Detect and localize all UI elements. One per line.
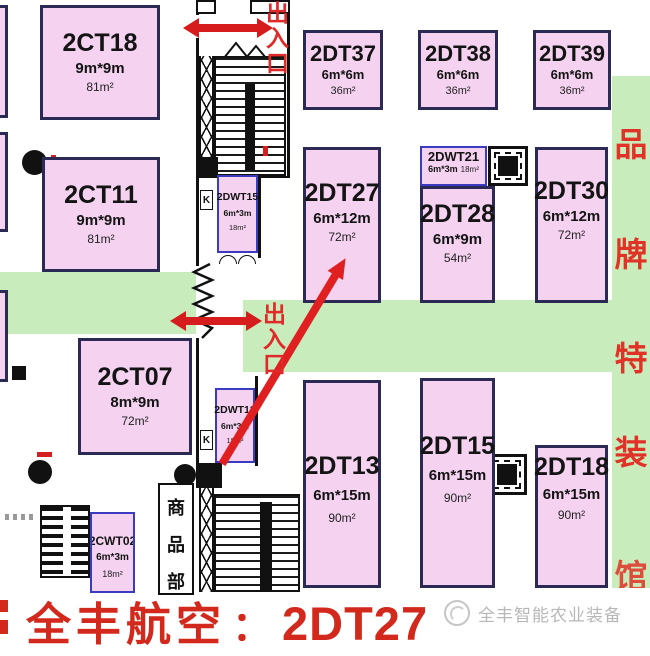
- booth-name: 2CT18: [62, 30, 137, 57]
- booth-dims: 8m*9m: [110, 393, 159, 412]
- shop-char: 品: [167, 531, 185, 557]
- door-stub: [196, 0, 216, 14]
- booth-2cwt02: 2CWT02 6m*3m 18m²: [90, 512, 135, 593]
- booth-2dt28: 2DT28 6m*9m 54m²: [420, 186, 495, 303]
- booth-dims: 6m*3m: [428, 164, 458, 174]
- booth-name: 2DT18: [534, 454, 609, 481]
- entrance-char: 口: [263, 352, 286, 377]
- booth-area: 81m²: [87, 232, 114, 247]
- booth-name: 2DWT21: [428, 150, 479, 164]
- booth-area: 72m²: [558, 228, 585, 243]
- booth-2dt15: 2DT15 6m*15m 90m²: [420, 378, 495, 588]
- booth-name: 2DT13: [304, 453, 379, 480]
- elevator-shaft-lower: [199, 488, 214, 592]
- entrance-char: 口: [266, 51, 289, 76]
- red-tick: [263, 146, 268, 156]
- booth-2ct18: 2CT18 9m*9m 81m²: [40, 5, 160, 120]
- booth-area: 36m²: [559, 84, 584, 98]
- booth-dims: 6m*15m: [313, 486, 371, 505]
- watermark-text: 全丰智能农业装备: [478, 601, 622, 626]
- booth-name: 2CWT02: [90, 534, 135, 548]
- booth-dims: 6m*3m: [96, 551, 129, 565]
- highlight-title: 全丰航空 ： 2DT27: [26, 588, 428, 653]
- hatched-structure: [40, 505, 90, 578]
- booth-area: 36m²: [445, 84, 470, 98]
- booth-dims: 6m*6m: [437, 67, 480, 83]
- booth-dims: 6m*12m: [543, 207, 601, 226]
- booth-2dwt21: 2DWT21 6m*3m 18m²: [420, 146, 487, 186]
- booth-name: 2DT28: [420, 201, 495, 228]
- booth-2ct07: 2CT07 8m*9m 72m²: [78, 338, 192, 455]
- booth-dims: 6m*15m: [429, 466, 487, 485]
- corridor-wall: [196, 338, 199, 466]
- door-swing-mark: [219, 255, 237, 264]
- booth-2dt18: 2DT18 6m*15m 90m²: [535, 445, 608, 588]
- booth-dims: 6m*12m: [313, 209, 371, 228]
- corridor-wall: [258, 178, 261, 258]
- booth-dims: 6m*3m: [224, 207, 252, 219]
- banner-char: 品: [614, 128, 648, 162]
- booth-name: 2DT38: [425, 42, 491, 66]
- entrance-char: 出: [263, 302, 286, 327]
- booth-dims: 6m*9m: [433, 230, 482, 249]
- exhibition-floor-plan: 品 牌 特 装 馆 K K 商 品 部: [0, 0, 650, 656]
- clipped-character-fragment: [0, 600, 8, 612]
- booth-2dwt15: 2DWT15 6m*3m 18m²: [217, 175, 258, 253]
- entrance-char: 入: [266, 26, 289, 51]
- column-framed: [488, 146, 528, 186]
- shop-department-box: 商 品 部: [158, 483, 194, 595]
- entrance-char: 出: [266, 1, 289, 26]
- booth-area: 18m²: [102, 568, 123, 580]
- booth-name: 2DT30: [534, 178, 609, 205]
- banner-char-clipped: 馆: [614, 560, 648, 588]
- k-text: K: [203, 195, 210, 206]
- booth-dims: 9m*9m: [75, 59, 124, 78]
- booth-area: 72m²: [121, 414, 148, 429]
- booth-area: 72m²: [328, 230, 355, 245]
- watermark: 全丰智能农业装备: [444, 600, 622, 626]
- booth-area: 36m²: [330, 84, 355, 98]
- booth-dims: 9m*9m: [76, 211, 125, 230]
- booth-name: 2CT11: [64, 182, 138, 209]
- stair-handrail-lower: [260, 502, 272, 590]
- aisle-green-left: [0, 272, 196, 334]
- booth-area: 18m²: [229, 223, 246, 233]
- column-round: [28, 460, 52, 484]
- wall-connector: [12, 366, 26, 380]
- entrance-arrow-top-icon: [183, 18, 273, 38]
- entrance-char: 入: [263, 327, 286, 352]
- booth-2dt39: 2DT39 6m*6m 36m²: [533, 30, 611, 110]
- column-square: [196, 157, 218, 177]
- booth-name: 2CT07: [97, 364, 172, 391]
- column-square: [196, 463, 222, 488]
- booth-dims: 6m*6m: [551, 67, 594, 83]
- title-colon: ：: [232, 594, 272, 652]
- booth-name: 2DT37: [310, 42, 376, 66]
- booth-area: 90m²: [328, 511, 355, 526]
- booth-name: 2DT15: [420, 433, 495, 460]
- watermark-logo-icon: [444, 600, 470, 626]
- k-text: K: [203, 435, 210, 446]
- stair-handrail-upper: [245, 84, 255, 170]
- banner-char: 牌: [614, 238, 648, 272]
- corridor-wall: [196, 178, 199, 266]
- booth-2dt38: 2DT38 6m*6m 36m²: [418, 30, 498, 110]
- banner-char: 装: [614, 436, 648, 470]
- faint-marking: [5, 514, 33, 520]
- clipped-character-fragment: [0, 620, 8, 634]
- door-swing-mark: [238, 255, 256, 264]
- booth-name: 2DWT15: [217, 191, 258, 203]
- entrance-arrow-middle-icon: [170, 311, 262, 331]
- booth-dims: 6m*15m: [543, 485, 601, 504]
- stair-label-k-lower: K: [200, 430, 213, 450]
- booth-dims: 6m*6m: [322, 67, 365, 83]
- stair-label-k-upper: K: [200, 190, 213, 210]
- booth-area: 81m²: [86, 80, 113, 95]
- shop-char: 商: [167, 494, 185, 520]
- staircase-lower: [214, 494, 300, 592]
- entrance-label-top: 出 入 口: [266, 1, 289, 76]
- red-tick: [37, 452, 52, 457]
- banner-green-right: 品 牌 特 装 馆: [612, 76, 650, 588]
- booth-name: 2DT39: [539, 42, 605, 66]
- booth-2ct11: 2CT11 9m*9m 81m²: [42, 157, 160, 272]
- highlighted-booth-number: 2DT27: [282, 596, 428, 651]
- banner-char: 特: [614, 342, 648, 376]
- booth-2dt13: 2DT13 6m*15m 90m²: [303, 380, 381, 588]
- booth-2dt37: 2DT37 6m*6m 36m²: [303, 30, 383, 110]
- exhibitor-name: 全丰航空: [26, 588, 226, 653]
- booth-area: 18m²: [461, 165, 479, 174]
- booth-area: 90m²: [444, 491, 471, 506]
- booth-partial-left: [0, 132, 8, 232]
- booth-area: 90m²: [558, 508, 585, 523]
- hatch-divider: [63, 507, 71, 576]
- booth-partial-left: [0, 5, 8, 118]
- booth-name: 2DT27: [304, 180, 379, 207]
- booth-area: 54m²: [444, 251, 471, 266]
- booth-2dt30: 2DT30 6m*12m 72m²: [535, 147, 608, 303]
- entrance-label-middle: 出 入 口: [263, 302, 286, 377]
- booth-partial-left: [0, 290, 8, 382]
